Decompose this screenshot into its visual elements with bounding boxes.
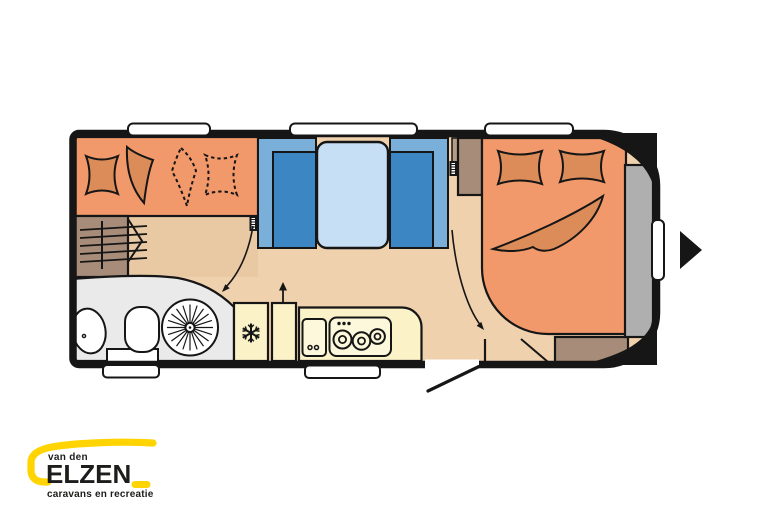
door-opening	[425, 360, 479, 370]
side-cabinet	[458, 138, 482, 195]
counter-column	[272, 303, 296, 361]
front-window	[652, 220, 664, 280]
pillow-icon	[560, 151, 604, 182]
blind-coil-icon	[451, 162, 457, 175]
washroom	[69, 276, 234, 364]
toilet-icon	[125, 307, 159, 352]
window	[290, 124, 417, 136]
dinette	[258, 138, 482, 248]
pillow-icon	[86, 156, 118, 194]
dinette-table	[317, 142, 388, 248]
caravan-floorplan-page: van den ELZEN caravans en recreatie	[0, 0, 768, 512]
dealer-logo: van den ELZEN caravans en recreatie	[20, 432, 180, 510]
logo-svg: van den ELZEN caravans en recreatie	[20, 432, 180, 510]
window	[305, 366, 380, 379]
pillow-icon	[498, 151, 542, 184]
hob-icon	[330, 318, 392, 357]
kitchen	[234, 303, 422, 361]
window	[485, 124, 573, 136]
door-swing	[428, 367, 479, 392]
window	[128, 124, 210, 136]
shower-wheel-icon	[162, 300, 218, 356]
logo-name: ELZEN	[46, 459, 131, 489]
entrance-arrow-icon	[680, 231, 702, 269]
logo-tagline: caravans en recreatie	[47, 489, 154, 500]
sink-icon	[303, 319, 327, 356]
gas-locker	[625, 165, 653, 337]
service-hatch	[103, 365, 159, 378]
